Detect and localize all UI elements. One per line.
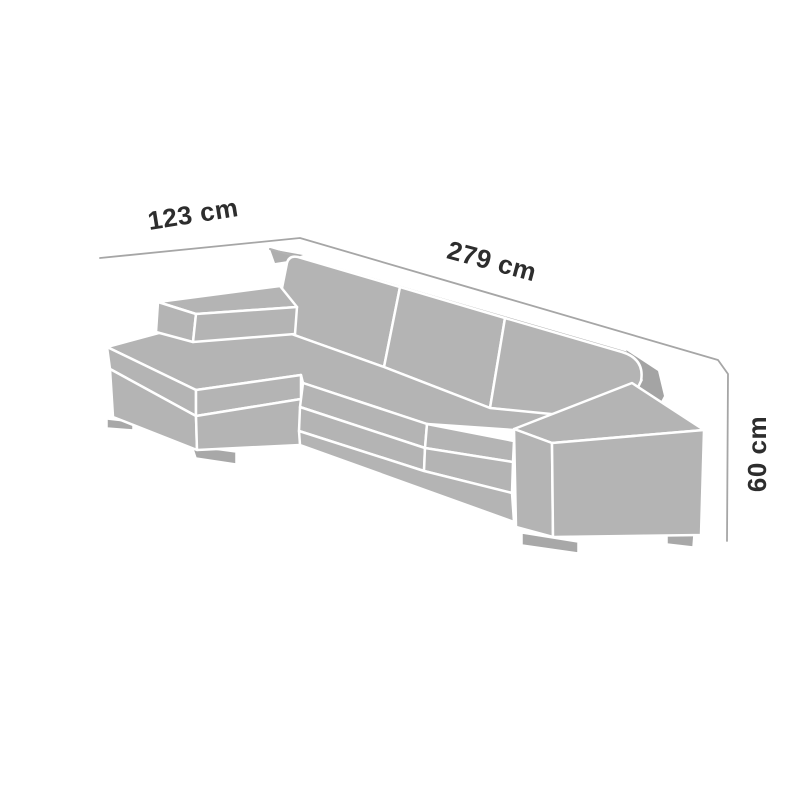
sofa-dimension-diagram: 123 cm 279 cm 60 cm (0, 0, 800, 800)
right-armrest-front-face (552, 430, 704, 537)
dim-label-width: 279 cm (444, 235, 540, 288)
dim-label-chaise-depth: 123 cm (146, 192, 241, 236)
dim-label-height: 60 cm (742, 416, 772, 492)
sofa-diagram-svg: 123 cm 279 cm 60 cm (0, 0, 800, 800)
right-armrest-left-face (514, 429, 553, 537)
